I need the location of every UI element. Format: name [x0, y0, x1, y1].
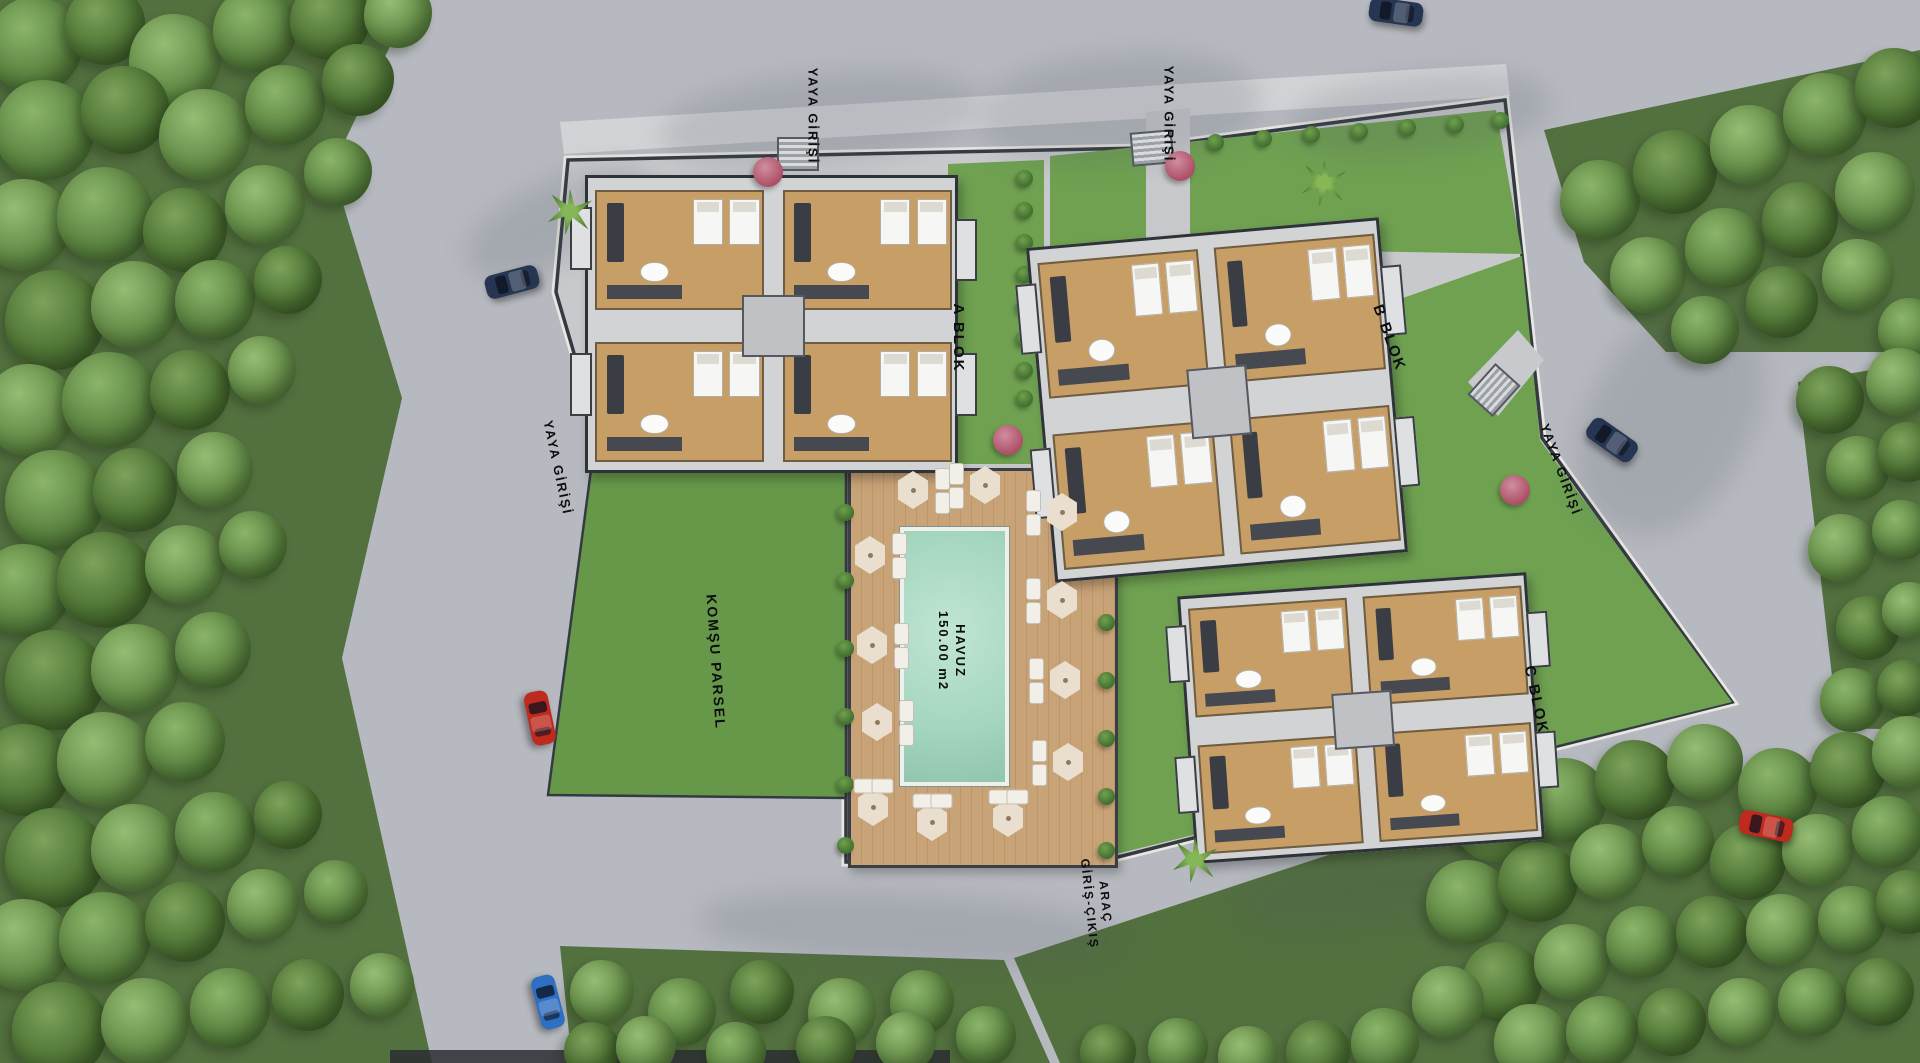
tree — [254, 781, 322, 849]
car-windshield — [528, 700, 548, 715]
dining-table — [1279, 494, 1308, 519]
balcony-terrace — [1526, 610, 1551, 668]
hedge-bush — [1207, 134, 1224, 151]
hedge-bush — [1098, 672, 1115, 689]
bed — [1131, 263, 1164, 317]
apartment-unit — [1363, 586, 1529, 706]
sun-lounger — [1032, 764, 1047, 786]
hedge-bush — [1399, 119, 1416, 136]
umbrella-center — [1063, 678, 1068, 683]
dining-table — [827, 262, 855, 283]
bed — [1314, 607, 1345, 651]
dining-table — [1419, 793, 1447, 814]
tree — [145, 702, 225, 782]
hedge-bush — [1303, 126, 1320, 143]
tree — [1710, 105, 1790, 185]
bed — [1307, 247, 1340, 301]
hedge-bush — [1098, 730, 1115, 747]
umbrella-center — [870, 643, 875, 648]
umbrella-center — [930, 820, 935, 825]
apartment-unit — [1372, 722, 1538, 842]
tree — [570, 960, 634, 1024]
tree — [219, 511, 287, 579]
sun-lounger — [872, 779, 894, 794]
umbrella-center — [871, 805, 876, 810]
tree — [1606, 906, 1678, 978]
hedge-bush — [1351, 123, 1368, 140]
dining-table — [640, 262, 668, 283]
tree — [59, 892, 151, 984]
tree — [1835, 152, 1915, 232]
sun-lounger — [892, 533, 907, 555]
apartment-unit — [1037, 249, 1209, 398]
tree — [1866, 348, 1920, 416]
stair-elevator-core — [742, 295, 805, 357]
tree — [272, 959, 344, 1031]
apartment-unit — [783, 190, 952, 311]
umbrella-center — [1060, 510, 1065, 515]
bed — [1322, 418, 1355, 472]
sofa — [607, 203, 624, 261]
sun-lounger — [894, 647, 909, 669]
bed — [1498, 730, 1529, 774]
sun-lounger — [1029, 682, 1044, 704]
tree — [159, 89, 251, 181]
apartment-unit — [1214, 234, 1386, 383]
tree — [1566, 996, 1638, 1063]
tree — [1820, 668, 1884, 732]
bed — [1455, 597, 1486, 641]
dining-table — [1235, 669, 1263, 690]
bed — [1146, 434, 1179, 488]
hedge-bush — [1098, 788, 1115, 805]
tree — [81, 66, 169, 154]
tree — [91, 261, 179, 349]
hedge-bush — [837, 504, 854, 521]
tree — [254, 246, 322, 314]
sun-lounger — [1007, 790, 1029, 805]
sofa — [1242, 432, 1263, 499]
apartment-unit — [1052, 420, 1224, 569]
apartment-unit — [595, 190, 764, 311]
tree — [1610, 237, 1686, 313]
tree — [1762, 182, 1838, 258]
car-windshield — [1748, 814, 1763, 834]
hedge-bush — [1016, 202, 1033, 219]
bed — [1465, 733, 1496, 777]
car-windshield — [535, 984, 555, 999]
bed — [1290, 745, 1321, 789]
tree — [93, 448, 177, 532]
sofa — [1375, 608, 1394, 661]
sun-lounger — [892, 557, 907, 579]
tree — [1877, 660, 1920, 716]
sun-lounger — [1029, 658, 1044, 680]
apartment-unit — [1229, 405, 1401, 554]
tree — [225, 165, 305, 245]
kitchen-counter — [794, 437, 868, 451]
kitchen-counter — [794, 285, 868, 299]
bed — [917, 199, 947, 245]
dining-table — [1410, 657, 1438, 678]
kitchen-counter — [1215, 825, 1285, 842]
tree — [1778, 968, 1846, 1036]
dining-table — [1264, 323, 1293, 348]
tree — [1642, 806, 1714, 878]
hedge-bush — [837, 837, 854, 854]
kitchen-counter — [607, 437, 681, 451]
bed — [693, 199, 723, 245]
hedge-bush — [837, 708, 854, 725]
car-roof — [1393, 2, 1411, 24]
bed — [1342, 244, 1375, 298]
tree — [1667, 724, 1743, 800]
apartment-unit — [595, 342, 764, 463]
building-c-blok — [1177, 572, 1545, 864]
tree — [1852, 796, 1920, 868]
balcony-terrace — [1165, 625, 1190, 683]
balcony-terrace — [955, 219, 977, 281]
tree — [101, 978, 189, 1063]
dining-table — [640, 414, 668, 435]
sofa — [1200, 620, 1219, 673]
dining-table — [827, 414, 855, 435]
sun-lounger — [931, 794, 953, 809]
kitchen-counter — [1250, 519, 1322, 541]
hedge-bush — [1016, 170, 1033, 187]
umbrella-center — [983, 483, 988, 488]
tree — [1633, 130, 1717, 214]
umbrella-center — [1060, 598, 1065, 603]
kitchen-counter — [1058, 363, 1130, 385]
sofa — [1209, 756, 1228, 809]
bed — [1489, 595, 1520, 639]
tree — [1872, 500, 1920, 560]
ornamental-red-tree — [1500, 475, 1530, 505]
bed — [1280, 609, 1311, 653]
bed — [729, 351, 759, 397]
balcony-terrace — [1174, 756, 1199, 814]
sofa — [1385, 744, 1404, 797]
hedge-bush — [1447, 116, 1464, 133]
sofa — [607, 355, 624, 413]
apartment-unit — [1197, 734, 1363, 854]
hedge-bush — [1016, 362, 1033, 379]
tree — [1412, 966, 1484, 1038]
tree — [1746, 894, 1818, 966]
bed — [880, 351, 910, 397]
bed — [1357, 415, 1390, 469]
building-a-blok — [585, 175, 958, 473]
sun-lounger — [949, 463, 964, 485]
sofa — [794, 355, 811, 413]
kitchen-counter — [607, 285, 681, 299]
sun-lounger — [949, 487, 964, 509]
sun-lounger — [1032, 740, 1047, 762]
car-windshield — [1379, 1, 1392, 20]
tree — [245, 65, 325, 145]
ornamental-red-tree — [753, 157, 783, 187]
tree — [1638, 988, 1706, 1056]
tree — [57, 532, 153, 628]
hedge-bush — [1492, 112, 1509, 129]
sun-lounger — [935, 492, 950, 514]
apartment-unit — [783, 342, 952, 463]
a-blok-label: A BLOK — [948, 304, 968, 373]
dining-table — [1244, 805, 1272, 826]
sun-lounger — [1026, 602, 1041, 624]
tree — [1570, 824, 1646, 900]
tree — [177, 432, 253, 508]
bed — [693, 351, 723, 397]
sofa — [794, 203, 811, 261]
umbrella-center — [875, 720, 880, 725]
tree — [175, 612, 251, 688]
stair-elevator-core — [1332, 690, 1395, 750]
bed — [917, 351, 947, 397]
stair-elevator-core — [1186, 364, 1252, 439]
balcony-terrace — [570, 353, 592, 415]
sun-lounger — [1026, 514, 1041, 536]
kitchen-counter — [1073, 534, 1145, 556]
sun-lounger — [899, 724, 914, 746]
tree — [175, 792, 255, 872]
yaya-girisi-top-right: YAYA GİRİŞİ — [1160, 66, 1177, 163]
umbrella-center — [868, 553, 873, 558]
tree — [1560, 160, 1640, 240]
apartment-unit — [1188, 598, 1354, 718]
tree — [190, 968, 270, 1048]
tree — [228, 336, 296, 404]
tree — [304, 138, 372, 206]
tree — [1498, 842, 1578, 922]
hedge-bush — [837, 640, 854, 657]
sun-lounger — [899, 700, 914, 722]
tree — [1846, 958, 1914, 1026]
car-windshield — [494, 275, 509, 295]
hedge-bush — [1098, 614, 1115, 631]
kitchen-counter — [1205, 689, 1275, 706]
bed — [880, 199, 910, 245]
tree — [1822, 239, 1894, 311]
building-b-blok — [1026, 217, 1408, 583]
hedge-bush — [1016, 390, 1033, 407]
havuz-label: HAVUZ 150.00 m2 — [934, 611, 968, 691]
tree — [145, 882, 225, 962]
bed — [729, 199, 759, 245]
tree — [91, 624, 179, 712]
hedge-bush — [837, 572, 854, 589]
tree — [1855, 48, 1920, 128]
tree — [1671, 296, 1739, 364]
tree — [91, 804, 179, 892]
tree — [227, 869, 299, 941]
tree — [62, 352, 158, 448]
site-plan-canvas: YAYA GİRİŞİYAYA GİRİŞİYAYA GİRİŞİYAYA Gİ… — [0, 0, 1920, 1063]
umbrella-center — [1006, 816, 1011, 821]
ornamental-red-tree — [993, 425, 1023, 455]
tree — [145, 525, 225, 605]
umbrella-center — [1066, 760, 1071, 765]
umbrella-center — [911, 488, 916, 493]
tree — [1685, 208, 1765, 288]
tree — [730, 960, 794, 1024]
tree — [1426, 860, 1510, 944]
tree — [1676, 896, 1748, 968]
hedge-bush — [837, 776, 854, 793]
sun-lounger — [1026, 578, 1041, 600]
sun-lounger — [935, 468, 950, 490]
tree — [1808, 514, 1876, 582]
tree — [1708, 978, 1776, 1046]
sofa — [1227, 261, 1248, 328]
tree — [350, 953, 414, 1017]
tree — [1746, 266, 1818, 338]
sun-lounger — [1026, 490, 1041, 512]
tree — [304, 860, 368, 924]
dining-table — [1087, 338, 1116, 363]
tree — [57, 712, 153, 808]
tree — [1534, 924, 1610, 1000]
tree — [322, 44, 394, 116]
tree — [1796, 366, 1864, 434]
tree — [175, 260, 255, 340]
sun-lounger — [894, 623, 909, 645]
sofa — [1050, 276, 1071, 343]
tree — [876, 1012, 936, 1063]
tree — [956, 1006, 1016, 1063]
bed — [1165, 260, 1198, 314]
kitchen-counter — [1390, 813, 1460, 830]
hedge-bush — [1255, 130, 1272, 147]
yaya-girisi-top-left: YAYA GİRİŞİ — [804, 68, 821, 165]
dining-table — [1102, 509, 1131, 534]
tree — [150, 350, 230, 430]
tree — [57, 167, 153, 263]
balcony-terrace — [1534, 731, 1559, 789]
